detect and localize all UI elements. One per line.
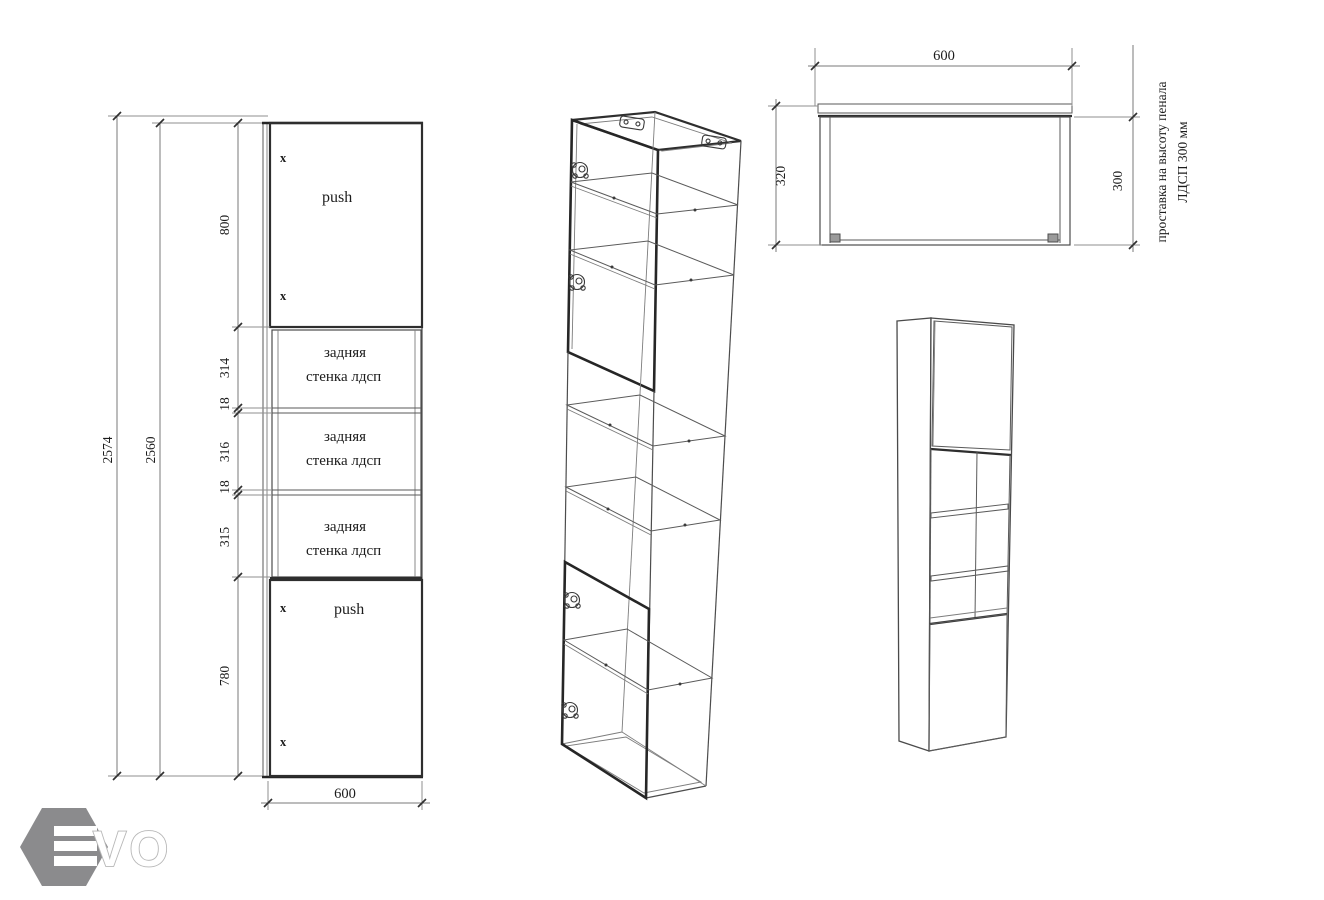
top-door-x-top: x [280,151,287,165]
hinge-icon [569,275,585,291]
dim-depth-total: 320 [773,166,788,187]
evo-logo: VO [20,808,171,886]
wireframe-top-face [572,112,741,151]
wireframe-bottom-door [562,562,649,798]
hinge-icon [572,163,588,179]
dim-overall-height: 2574 [100,436,115,463]
iso-solid-view [897,318,1014,751]
dim-chain-315: 315 [217,527,232,548]
dim-chain-314: 314 [217,358,232,379]
wireframe-carcass-edges [562,112,741,798]
bottom-door-push-label: push [334,601,364,618]
top-view-note: проставка на высоту пенала ЛДСП 300 мм [1154,82,1190,243]
back-panel-2-line2: стенка лдсп [306,453,381,469]
top-view: 600 320 300 проставка на высоту пенала Л… [768,45,1190,252]
dim-front-width: 600 [334,786,356,802]
logo-letters: VO [93,821,171,877]
back-panel-2-line1: задняя [324,429,366,445]
top-view-body [818,104,1072,245]
bottom-door-x-top: x [280,601,287,615]
solid-left-side-panel [897,318,931,751]
front-view-top-door: x push x [270,123,422,327]
wireframe-top-door [568,120,658,391]
dim-chain-780: 780 [217,666,232,687]
dim-top-width: 600 [933,48,955,64]
dim-chain-316: 316 [217,442,232,463]
hinge-icon [562,703,578,719]
top-door-x-bottom: x [280,289,287,303]
top-door-push-label: push [322,189,352,206]
front-view-bottom-door: x push x [270,580,422,776]
front-view-back-panels: задняя стенка лдсп задняя стенка лдсп за… [270,330,422,578]
dim-inner-height: 2560 [143,436,158,463]
solid-front-face [929,318,1014,751]
iso-wireframe-view [562,112,741,798]
back-panel-1-line1: задняя [324,345,366,361]
drawing-page: x push x задняя стенка лдсп задняя стенк… [0,0,1324,900]
front-view: x push x задняя стенка лдсп задняя стенк… [100,112,430,810]
hinge-icon [564,593,580,609]
logo-e-bars [54,826,97,866]
drawing-canvas: x push x задняя стенка лдсп задняя стенк… [0,0,1324,900]
wireframe-shelves [564,173,738,694]
spacer-note-line2: ЛДСП 300 мм [1175,121,1190,203]
dim-chain-18b: 18 [217,480,232,494]
bottom-door-x-bottom: x [280,735,287,749]
dim-depth-body: 300 [1110,171,1125,192]
wireframe-hinges [562,163,588,719]
front-view-carcass [262,123,423,777]
dim-chain-800: 800 [217,215,232,236]
spacer-note-line1: проставка на высоту пенала [1154,82,1169,243]
back-panel-3-line2: стенка лдсп [306,543,381,559]
back-panel-1-line2: стенка лдсп [306,369,381,385]
back-panel-3-line1: задняя [324,519,366,535]
top-view-dimensions: 600 320 300 [768,45,1140,252]
dim-chain-18a: 18 [217,397,232,411]
